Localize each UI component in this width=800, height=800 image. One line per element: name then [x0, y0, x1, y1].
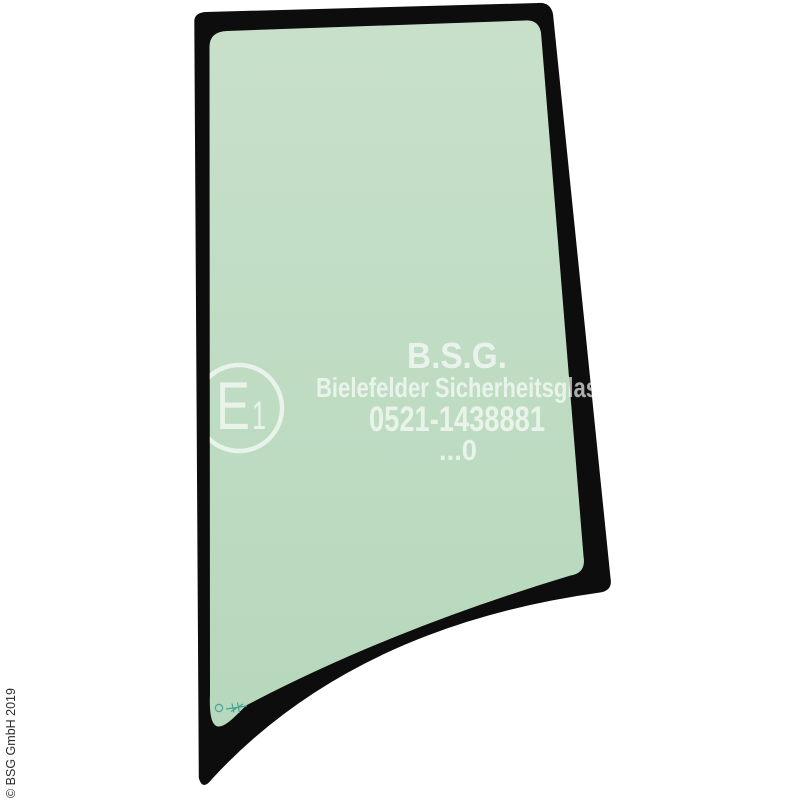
e-mark-number: 1 — [252, 394, 266, 438]
product-image: E 1 B.S.G. Bielefelder Sicherheitsglas 0… — [0, 0, 800, 800]
phone-number: 0521-1438881 — [369, 400, 545, 439]
brand-name: B.S.G. — [407, 335, 507, 376]
code-number: ...0 — [439, 435, 477, 467]
door-glass-illustration: E 1 B.S.G. Bielefelder Sicherheitsglas 0… — [0, 0, 800, 800]
e-mark-letter: E — [216, 368, 250, 444]
copyright-notice: © BSG GmbH 2019 — [4, 688, 18, 798]
manufacturer-name: Bielefelder Sicherheitsglas — [316, 372, 598, 403]
